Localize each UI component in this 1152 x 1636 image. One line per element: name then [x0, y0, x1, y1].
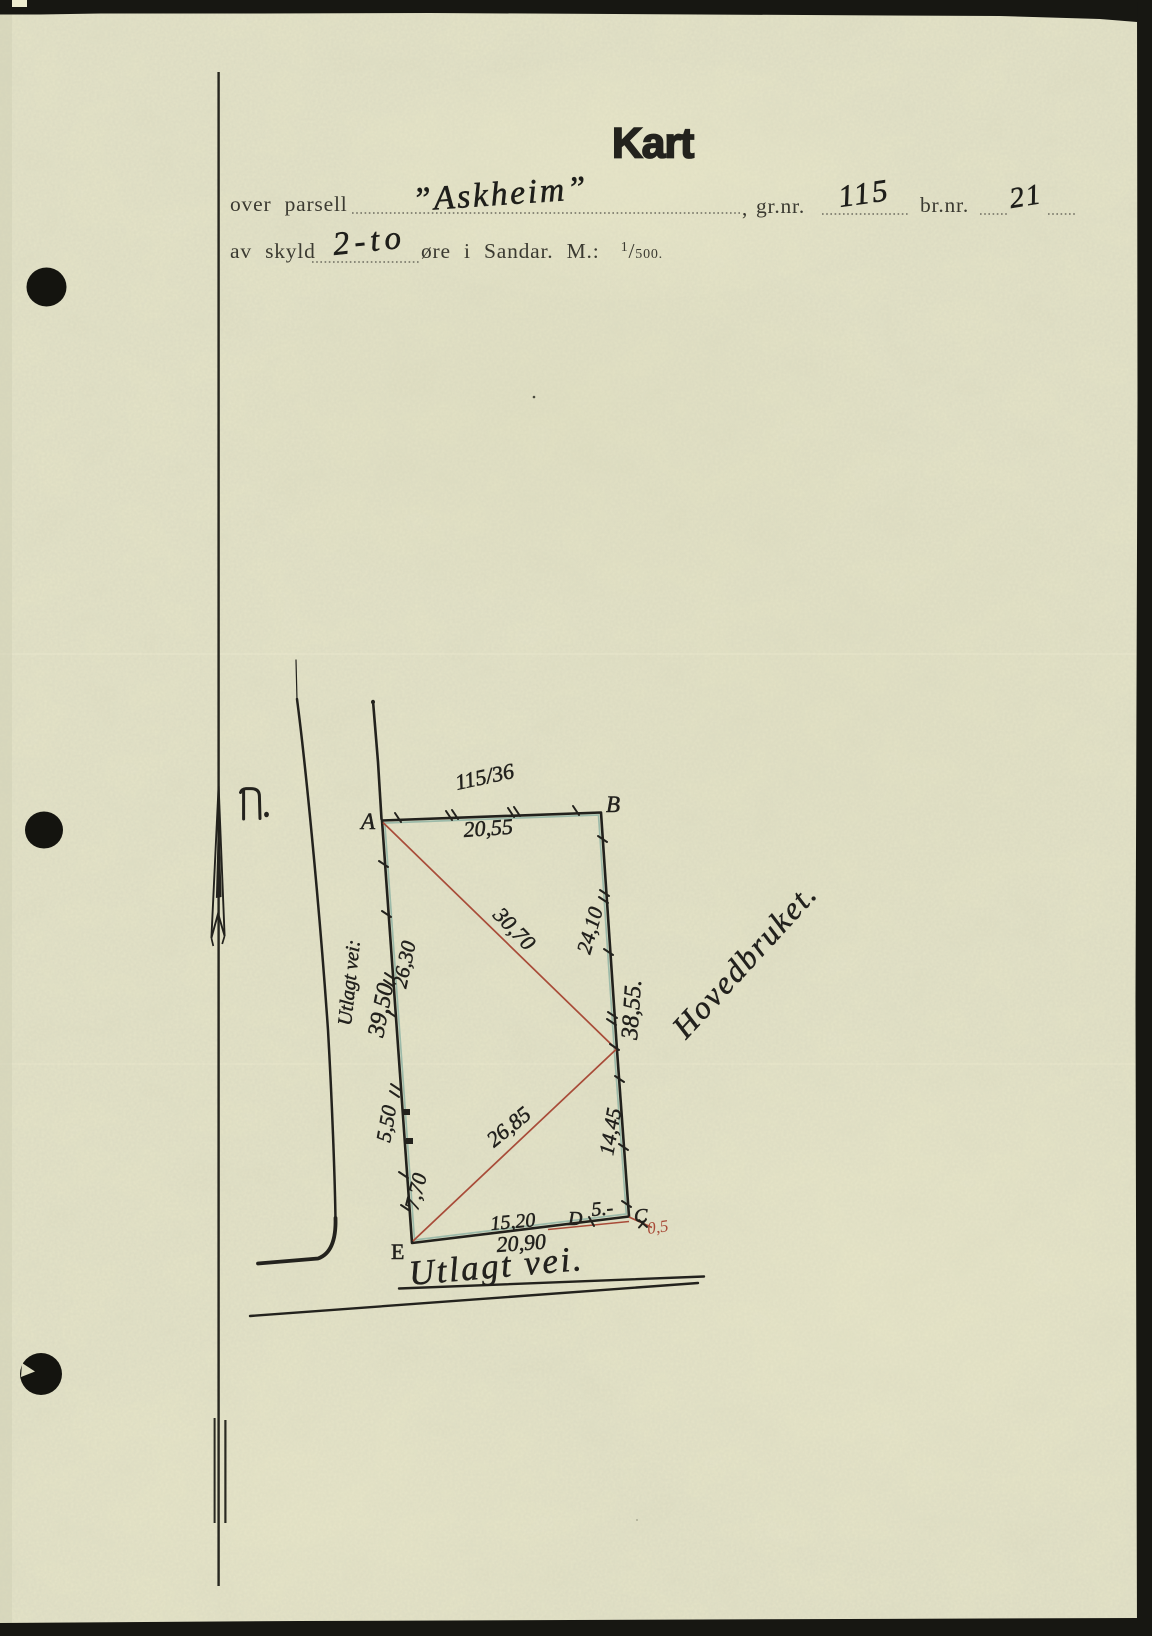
svg-text:over parsell: over parsell [230, 192, 348, 216]
svg-text:gr.nr.: gr.nr. [756, 194, 805, 218]
svg-text:115: 115 [836, 172, 892, 214]
svg-text:Kart: Kart [612, 121, 694, 168]
svg-text:,: , [742, 196, 747, 220]
svg-text:br.nr.: br.nr. [920, 193, 969, 217]
svg-text:E: E [391, 1239, 404, 1264]
svg-text:D: D [567, 1208, 583, 1230]
svg-text:21: 21 [1007, 178, 1045, 215]
svg-text:38,55.: 38,55. [617, 979, 647, 1042]
svg-text:5.-: 5.- [591, 1197, 615, 1221]
svg-text:2-to: 2-to [331, 220, 408, 263]
svg-text:A: A [359, 809, 376, 834]
svg-text:0,5: 0,5 [646, 1216, 670, 1238]
svg-text:av skyld: av skyld [230, 239, 316, 263]
svg-text:B: B [606, 792, 620, 817]
svg-text:20,55: 20,55 [463, 814, 514, 842]
